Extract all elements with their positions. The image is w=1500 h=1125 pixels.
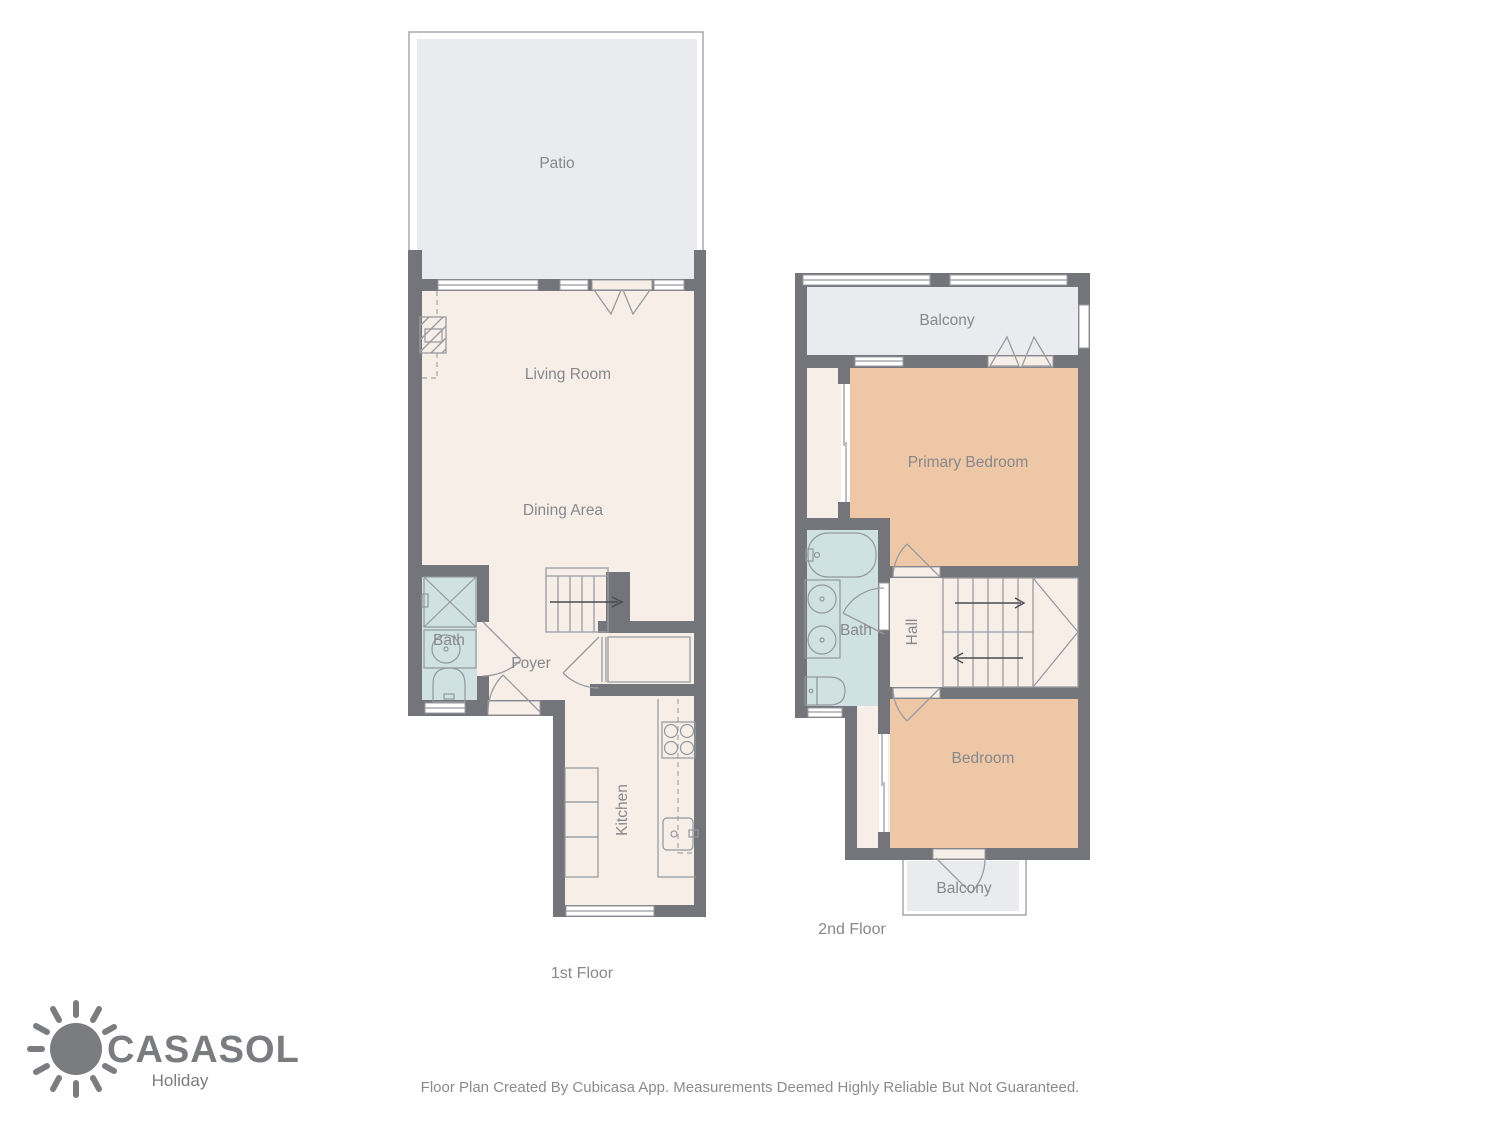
french-door-gap xyxy=(592,280,652,290)
bedroom-label: Bedroom xyxy=(952,750,1015,767)
floor1-caption: 1st Floor xyxy=(551,965,614,982)
living-room-label: Living Room xyxy=(525,366,611,383)
brand-name: CASASOL xyxy=(107,1029,300,1071)
floor1-plan: Patio Living Room Dining Area Bath Foyer… xyxy=(408,32,706,982)
floor2-caption: 2nd Floor xyxy=(818,921,886,938)
floor2-plan: Balcony Primary Bedroom Bath Hall Bedroo… xyxy=(795,273,1090,938)
bedroom-door-gap xyxy=(893,688,940,698)
balcony-bottom-door-gap xyxy=(933,849,985,859)
primary-bedroom-door-gap xyxy=(893,567,940,577)
bath2-area xyxy=(807,530,878,706)
floor-plan-canvas: Patio Living Room Dining Area Bath Foyer… xyxy=(0,0,1500,1125)
window xyxy=(1079,305,1089,348)
kitchen-label: Kitchen xyxy=(614,784,631,836)
balcony-top-label: Balcony xyxy=(919,312,974,329)
dining-area-label: Dining Area xyxy=(523,502,604,519)
bath2-label: Bath xyxy=(840,622,872,639)
bath2-door-gap xyxy=(879,583,889,630)
brand-tagline: Holiday xyxy=(152,1071,209,1090)
primary-bedroom-label: Primary Bedroom xyxy=(908,454,1029,471)
casasol-logo: CASASOL Holiday xyxy=(30,1003,300,1095)
hall-label: Hall xyxy=(904,619,921,646)
patio-label: Patio xyxy=(539,155,574,172)
bath1-door-gap xyxy=(477,622,489,676)
balcony-bottom-label: Balcony xyxy=(936,880,991,897)
foyer-label: Foyer xyxy=(511,655,551,672)
sun-icon xyxy=(50,1023,102,1075)
bedroom-area xyxy=(890,699,1078,848)
disclaimer-text: Floor Plan Created By Cubicasa App. Meas… xyxy=(421,1079,1080,1096)
entry-door-gap xyxy=(488,701,540,715)
bath1-label: Bath xyxy=(433,632,465,649)
floor-plan-page: Patio Living Room Dining Area Bath Foyer… xyxy=(0,0,1500,1125)
